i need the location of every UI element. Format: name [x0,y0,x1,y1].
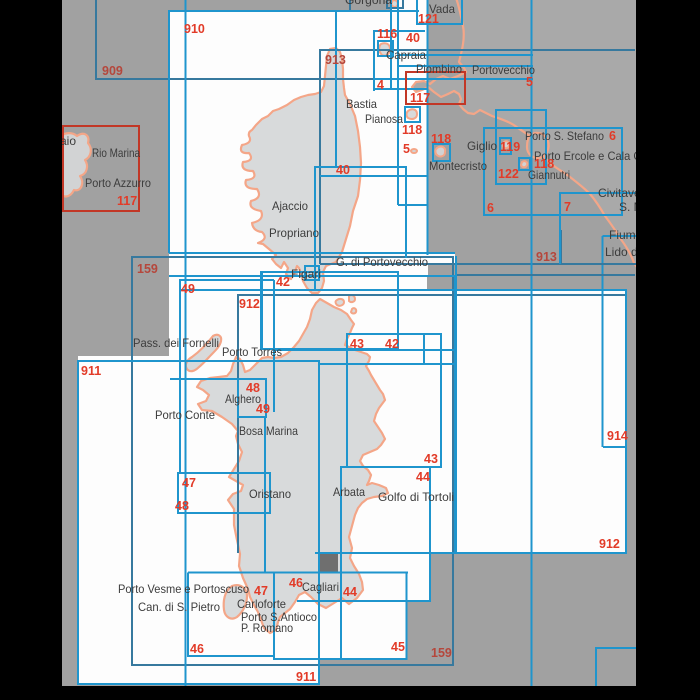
svg-text:914: 914 [607,429,628,443]
svg-text:911: 911 [296,670,316,684]
svg-text:Carloforte: Carloforte [237,597,286,611]
svg-text:Oristano: Oristano [249,487,291,501]
svg-text:121: 121 [418,12,439,26]
svg-text:Porto S. Stefano: Porto S. Stefano [525,129,604,143]
svg-text:40: 40 [336,163,350,177]
svg-text:911: 911 [81,364,101,378]
svg-text:Porto Conte: Porto Conte [155,408,215,422]
svg-text:40: 40 [406,31,420,45]
svg-text:Pianosa: Pianosa [365,112,403,126]
svg-text:Giglio: Giglio [467,139,497,153]
svg-text:45: 45 [391,640,405,654]
svg-text:6: 6 [487,201,494,215]
svg-text:Rio Marina: Rio Marina [92,146,140,160]
svg-text:48: 48 [246,381,260,395]
svg-text:48: 48 [175,499,189,513]
svg-text:Piombino: Piombino [416,62,462,76]
svg-text:5: 5 [526,75,533,89]
svg-text:Capraia: Capraia [386,48,426,62]
svg-text:Bosa Marina: Bosa Marina [239,424,298,438]
svg-text:118: 118 [534,157,554,171]
svg-text:7: 7 [564,200,571,214]
svg-text:Can. di S. Pietro: Can. di S. Pietro [138,600,220,614]
svg-text:42: 42 [276,275,290,289]
svg-text:5: 5 [403,142,410,156]
svg-text:44: 44 [416,470,430,484]
svg-text:6: 6 [609,129,616,143]
svg-text:43: 43 [424,452,438,466]
svg-text:912: 912 [599,537,620,551]
svg-text:119: 119 [500,140,520,154]
svg-text:Cagliari: Cagliari [302,580,339,594]
svg-text:913: 913 [536,250,557,264]
svg-text:44: 44 [343,585,357,599]
svg-text:Propriano: Propriano [269,226,319,240]
svg-text:47: 47 [182,476,196,490]
svg-text:Pass. dei Fornelli: Pass. dei Fornelli [133,336,219,350]
svg-text:117: 117 [117,194,137,208]
svg-text:Porto Azzurro: Porto Azzurro [85,176,151,190]
svg-text:Gorgona: Gorgona [345,0,392,7]
svg-text:46: 46 [289,576,303,590]
svg-text:Figari: Figari [291,267,321,281]
svg-text:43: 43 [350,337,364,351]
svg-text:118: 118 [431,132,451,146]
svg-text:913: 913 [325,53,346,67]
svg-text:912: 912 [239,297,260,311]
svg-text:Golfo di Tortoli: Golfo di Tortoli [378,490,454,504]
svg-text:909: 909 [102,64,123,78]
svg-text:Montecristo: Montecristo [429,159,487,173]
svg-text:Porto Torres: Porto Torres [222,345,282,359]
svg-text:47: 47 [254,584,268,598]
svg-text:49: 49 [181,282,195,296]
svg-text:Bastia: Bastia [346,97,377,111]
svg-text:49: 49 [256,402,270,416]
svg-text:P. Romano: P. Romano [241,621,293,635]
svg-text:aio: aio [60,134,76,148]
svg-text:4: 4 [377,78,384,92]
svg-text:159: 159 [137,262,158,276]
svg-text:117: 117 [410,91,430,105]
svg-text:910: 910 [184,22,205,36]
svg-text:G. di Portovecchio: G. di Portovecchio [336,255,428,269]
svg-text:116: 116 [377,27,397,41]
svg-text:Arbata: Arbata [333,485,365,499]
svg-text:46: 46 [190,642,204,656]
svg-text:118: 118 [402,123,422,137]
svg-text:122: 122 [498,167,519,181]
svg-text:42: 42 [385,337,399,351]
svg-text:Ajaccio: Ajaccio [272,199,308,213]
svg-text:Porto Vesme e Portoscuso: Porto Vesme e Portoscuso [118,582,249,596]
svg-text:159: 159 [431,646,452,660]
